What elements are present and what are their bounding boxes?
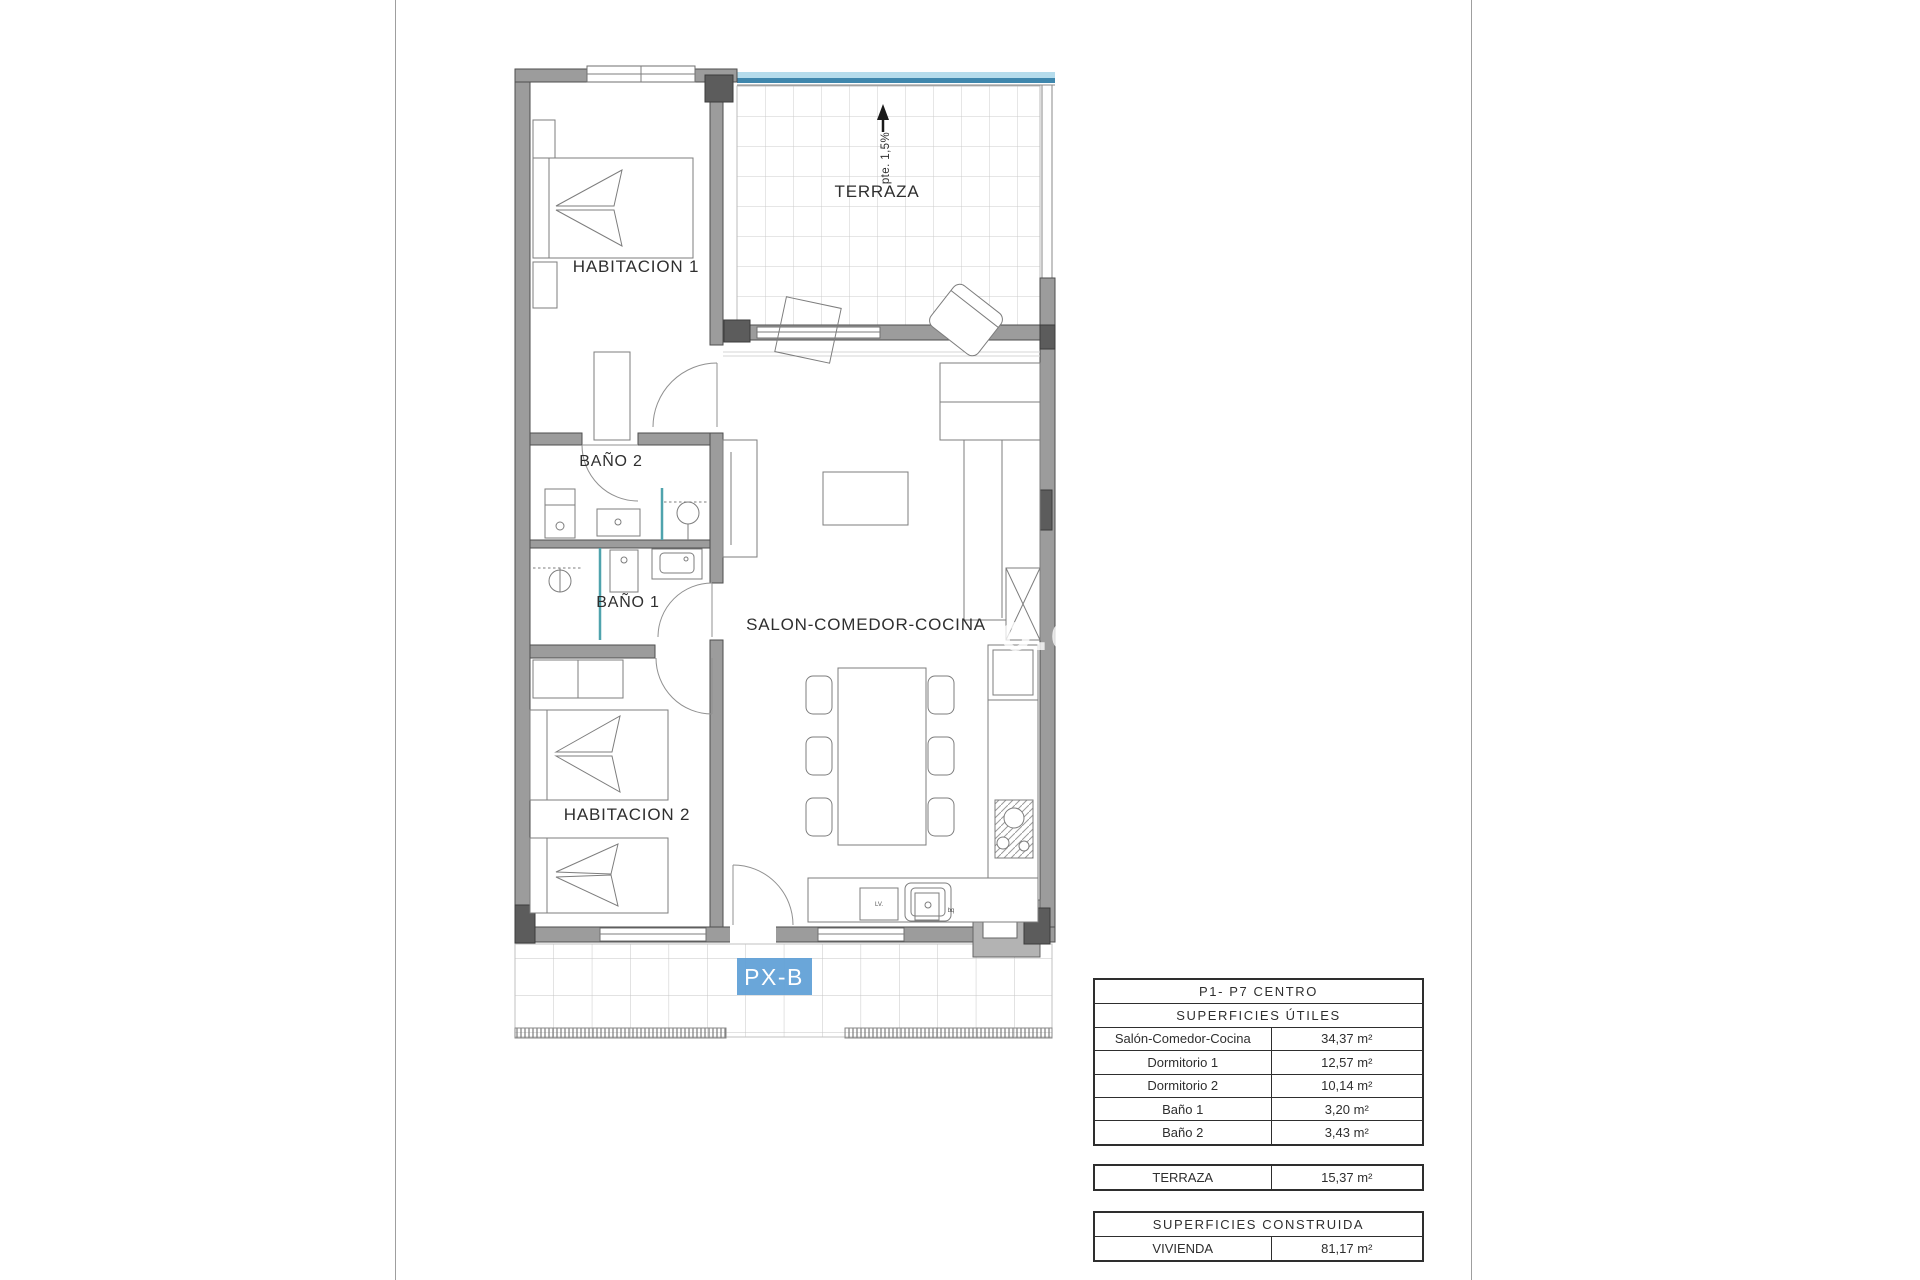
terrace-edge-dark (737, 78, 1055, 83)
terrace (737, 72, 1055, 330)
bath2-fixtures (545, 488, 708, 540)
terrace-edge-light (737, 72, 1055, 78)
table-row: Baño 1 3,20 m² (1095, 1097, 1422, 1120)
table-row: Baño 2 3,43 m² (1095, 1120, 1422, 1143)
dining-table (838, 668, 926, 845)
table-row: Dormitorio 2 10,14 m² (1095, 1074, 1422, 1097)
watermark: o.c (1000, 604, 1081, 662)
nightstand (533, 262, 557, 308)
coffee-table (823, 472, 908, 525)
salon-label: SALON-COMEDOR-COCINA (746, 615, 986, 634)
surface-table-construida: SUPERFICIES CONSTRUIDA VIVIENDA 81,17 m² (1093, 1211, 1424, 1262)
table-subtitle: SUPERFICIES ÚTILES (1095, 1008, 1422, 1023)
terraza-label: TERRAZA (835, 182, 920, 201)
pillar (705, 75, 733, 102)
entry-opening (730, 926, 776, 943)
table-row: VIVIENDA 81,17 m² (1095, 1236, 1422, 1259)
chair (928, 676, 954, 714)
habitacion1-label: HABITACION 1 (573, 257, 699, 276)
habitacion2-label: HABITACION 2 (564, 805, 690, 824)
table-title: P1- P7 CENTRO (1095, 984, 1422, 999)
chair (806, 676, 832, 714)
slope-label: pte. 1,5% (880, 132, 892, 184)
tv-unit (723, 440, 757, 557)
nightstand (533, 120, 555, 158)
table-title-row: SUPERFICIES CONSTRUIDA (1095, 1213, 1422, 1236)
washer-label: LV. (875, 902, 883, 908)
bano2-label: BAÑO 2 (579, 450, 643, 470)
hall-closet (594, 352, 630, 440)
table-subtitle-row: SUPERFICIES ÚTILES (1095, 1003, 1422, 1026)
pillar (724, 320, 750, 342)
toilet (597, 509, 640, 536)
table-title-row: P1- P7 CENTRO (1095, 980, 1422, 1003)
pillar (1040, 325, 1055, 349)
door-arc-bath1 (658, 583, 712, 637)
chair (806, 798, 832, 836)
table-row: Salón-Comedor-Cocina 34,37 m² (1095, 1027, 1422, 1050)
table-row: TERRAZA 15,37 m² (1095, 1166, 1422, 1189)
boiler (545, 489, 575, 538)
bano1-label: BAÑO 1 (596, 591, 660, 611)
chair (928, 737, 954, 775)
plan-sheet: LV. bq pte. 1,5% TERRAZA HABITACION 1 BA… (0, 0, 1920, 1280)
washbasin (677, 502, 699, 524)
chair (806, 737, 832, 775)
table-row: Dormitorio 1 12,57 m² (1095, 1050, 1422, 1073)
patio-hatch-right (845, 1028, 1052, 1038)
toilet (610, 550, 638, 592)
door-arc-entry (733, 865, 793, 925)
surface-table-main: P1- P7 CENTRO SUPERFICIES ÚTILES Salón-C… (1093, 978, 1424, 1146)
single-bed (530, 710, 668, 800)
appliance-label: bq (948, 908, 955, 914)
door-arc-bedroom1 (653, 363, 717, 427)
surface-table-terraza: TERRAZA 15,37 m² (1093, 1164, 1424, 1191)
floor-plan-drawing: LV. bq pte. 1,5% TERRAZA HABITACION 1 BA… (0, 0, 1920, 1280)
door-arc-bedroom2 (656, 658, 712, 714)
chair (928, 798, 954, 836)
bedroom1-furniture (533, 120, 693, 308)
terrace-tiles (737, 86, 1040, 330)
patio-hatch-left (515, 1028, 726, 1038)
bedroom2-furniture (530, 660, 668, 913)
table-title: SUPERFICIES CONSTRUIDA (1095, 1217, 1422, 1232)
double-bed (533, 158, 693, 258)
unit-tag-label: PX-B (744, 964, 804, 990)
